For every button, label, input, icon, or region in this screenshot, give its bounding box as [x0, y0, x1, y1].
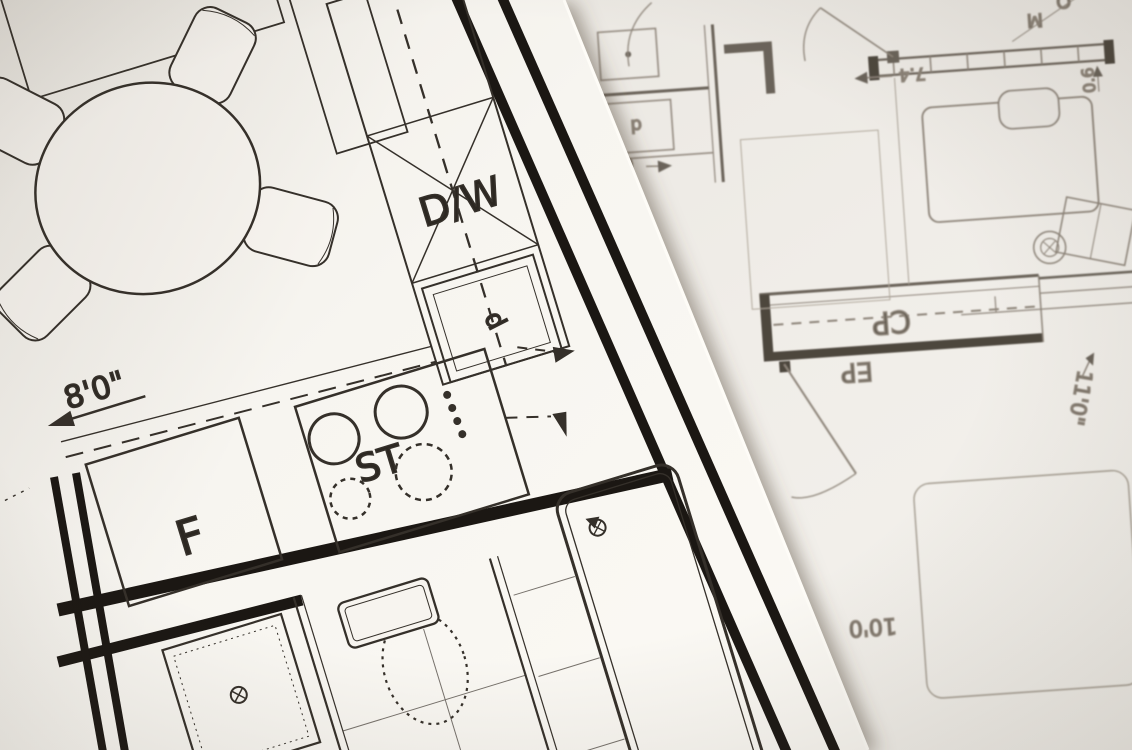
dimension-10-0: 10'0 [848, 612, 898, 640]
letter-m: M [1026, 8, 1044, 31]
entry-label: EP [840, 355, 874, 387]
blueprint-photo: CP EP [0, 0, 1132, 750]
closet-label: CP [871, 302, 912, 340]
svg-text:7.4: 7.4 [898, 63, 926, 85]
room-d-label: d [630, 115, 643, 137]
blueprint-scene: CP EP [0, 0, 1132, 750]
desk-chair [998, 87, 1061, 129]
